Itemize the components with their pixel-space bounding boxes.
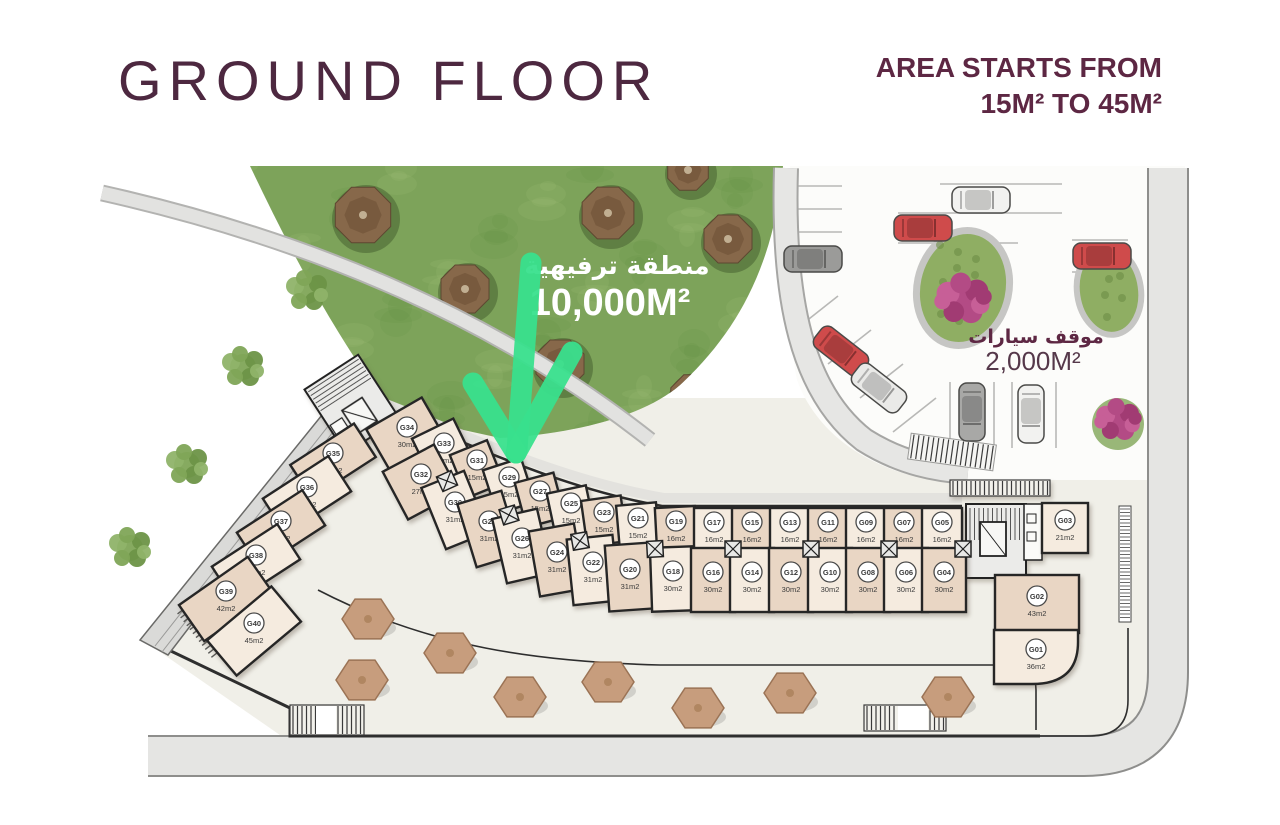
svg-text:G27: G27: [533, 487, 547, 496]
svg-text:16m2: 16m2: [819, 535, 838, 544]
svg-text:16m2: 16m2: [667, 534, 686, 543]
car: [959, 383, 985, 441]
svg-text:G26: G26: [515, 534, 529, 543]
svg-text:43m2: 43m2: [1028, 609, 1047, 618]
car: [1018, 385, 1044, 443]
unit-G02: G0243m2: [995, 575, 1079, 633]
svg-text:15m2: 15m2: [629, 531, 648, 540]
bush: [286, 270, 328, 310]
recreation-label-ar: منطقة ترفيهية: [524, 251, 709, 281]
svg-text:G40: G40: [247, 619, 261, 628]
svg-text:G04: G04: [937, 568, 952, 577]
svg-text:G38: G38: [249, 551, 263, 560]
bush: [222, 346, 264, 386]
svg-text:30m2: 30m2: [743, 585, 762, 594]
svg-text:31m2: 31m2: [548, 565, 567, 574]
svg-text:36m2: 36m2: [1027, 662, 1046, 671]
parking-area-label: 2,000M²: [985, 346, 1081, 376]
area-note: AREA STARTS FROM 15M² TO 45M²: [876, 50, 1162, 123]
unit-G01: G0136m2: [994, 630, 1078, 684]
lawn-tree: [665, 148, 717, 200]
lawn-tree: [701, 213, 761, 273]
svg-text:30m2: 30m2: [782, 585, 801, 594]
exit-box: [725, 541, 741, 557]
exit-box: [881, 541, 897, 557]
right-fence: [1119, 506, 1131, 622]
svg-text:G16: G16: [706, 568, 720, 577]
svg-text:16m2: 16m2: [857, 535, 876, 544]
svg-text:G31: G31: [470, 456, 484, 465]
svg-text:16m2: 16m2: [933, 535, 952, 544]
svg-text:G06: G06: [899, 568, 913, 577]
exit-box: [571, 532, 590, 551]
bush: [166, 444, 208, 484]
svg-text:G15: G15: [745, 518, 759, 527]
svg-text:30m2: 30m2: [821, 585, 840, 594]
car: [894, 215, 952, 241]
svg-text:30m2: 30m2: [935, 585, 954, 594]
unit-G03: G0321m2: [1042, 503, 1088, 553]
svg-text:G03: G03: [1058, 516, 1072, 525]
svg-text:G11: G11: [821, 518, 835, 527]
exit-box: [955, 541, 971, 557]
parking-label-ar: موقف سيارات: [968, 326, 1103, 348]
steps: [290, 705, 364, 735]
svg-text:16m2: 16m2: [743, 535, 762, 544]
svg-text:G18: G18: [666, 567, 680, 576]
exit-box: [499, 505, 519, 525]
svg-text:G10: G10: [823, 568, 837, 577]
svg-text:G34: G34: [400, 423, 415, 432]
svg-text:G39: G39: [219, 587, 233, 596]
svg-text:G02: G02: [1030, 592, 1044, 601]
svg-text:31m2: 31m2: [621, 582, 640, 591]
lawn-tree: [579, 185, 643, 249]
exit-box: [647, 541, 664, 558]
ground-floor-plan-page: GROUND FLOOR AREA STARTS FROM 15M² TO 45…: [0, 0, 1280, 825]
svg-text:G01: G01: [1029, 645, 1043, 654]
svg-text:G07: G07: [897, 518, 911, 527]
svg-text:G20: G20: [623, 565, 637, 574]
svg-text:G29: G29: [502, 473, 516, 482]
svg-text:G22: G22: [586, 558, 600, 567]
svg-text:G08: G08: [861, 568, 875, 577]
svg-text:G12: G12: [784, 568, 798, 577]
car: [784, 246, 842, 272]
svg-text:G25: G25: [564, 499, 578, 508]
svg-text:G21: G21: [631, 514, 645, 523]
svg-text:30m2: 30m2: [704, 585, 723, 594]
svg-text:31m2: 31m2: [584, 575, 603, 584]
site-plan: G3534m2G3637m2G3737m2G3837m2G3942m2G4045…: [0, 0, 1280, 825]
lawn-tree: [332, 185, 400, 253]
steps: [950, 480, 1050, 496]
car: [1073, 243, 1131, 269]
svg-text:45m2: 45m2: [245, 636, 264, 645]
svg-text:30m2: 30m2: [859, 585, 878, 594]
svg-text:G13: G13: [783, 518, 797, 527]
recreation-area-label: 10,000M²: [530, 282, 691, 324]
exit-box: [803, 541, 819, 557]
svg-text:G05: G05: [935, 518, 949, 527]
svg-text:G23: G23: [597, 508, 611, 517]
bush: [109, 527, 151, 567]
svg-text:G33: G33: [437, 439, 451, 448]
car: [952, 187, 1010, 213]
svg-text:16m2: 16m2: [705, 535, 724, 544]
svg-text:30m2: 30m2: [897, 585, 916, 594]
svg-text:21m2: 21m2: [1056, 533, 1075, 542]
svg-text:15m2: 15m2: [595, 525, 614, 534]
page-title: GROUND FLOOR: [118, 48, 659, 113]
bougainvillea-standalone: [1092, 398, 1144, 450]
svg-text:G24: G24: [550, 548, 565, 557]
area-note-line2: 15M² TO 45M²: [876, 86, 1162, 122]
svg-text:42m2: 42m2: [217, 604, 236, 613]
svg-text:G32: G32: [414, 470, 428, 479]
svg-text:G19: G19: [669, 517, 683, 526]
svg-text:30m2: 30m2: [664, 584, 683, 593]
svg-text:31m2: 31m2: [513, 551, 532, 560]
svg-text:G14: G14: [745, 568, 760, 577]
svg-text:G17: G17: [707, 518, 721, 527]
svg-text:16m2: 16m2: [781, 535, 800, 544]
area-note-line1: AREA STARTS FROM: [876, 50, 1162, 86]
svg-text:G09: G09: [859, 518, 873, 527]
